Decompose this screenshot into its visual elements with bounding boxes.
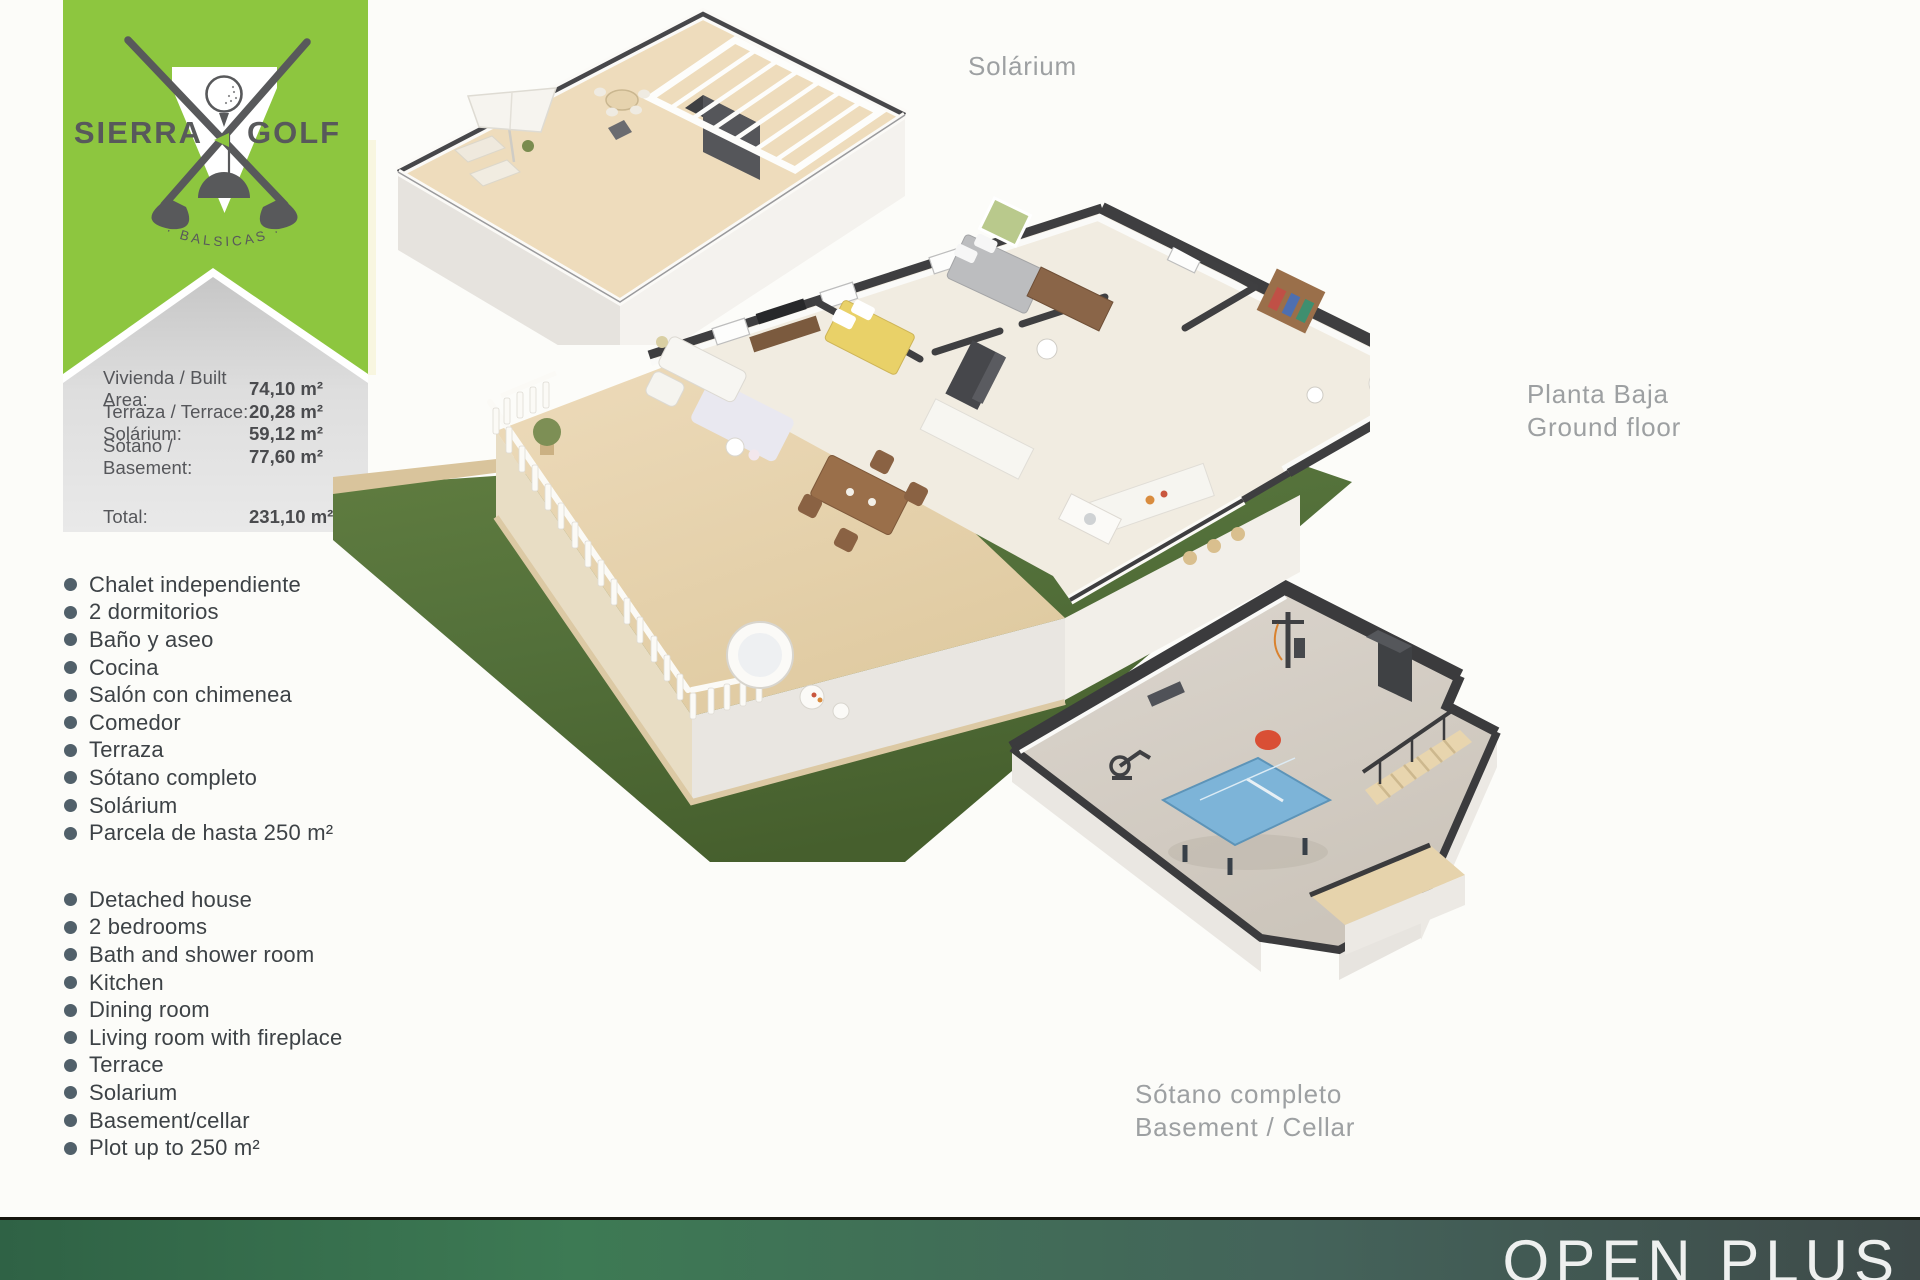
bullet-icon (64, 578, 77, 591)
feature-item: Living room with fireplace (64, 1024, 424, 1052)
bullet-icon (64, 921, 77, 934)
footer-title: OPEN PLUS (1503, 1232, 1900, 1280)
bullet-icon (64, 689, 77, 702)
feature-item: Solarium (64, 1079, 424, 1107)
beanbag (1255, 730, 1281, 750)
area-row-label: Terraza / Terrace: (103, 401, 249, 423)
brochure-page: SIERRA GOLF · BALSICAS · (0, 0, 1920, 1280)
bullet-icon (64, 948, 77, 961)
bullet-icon (64, 606, 77, 619)
area-row-value: 77,60 m² (249, 446, 323, 468)
bullet-icon (64, 1114, 77, 1127)
washbasin (1037, 339, 1057, 359)
area-row-value: 74,10 m² (249, 378, 323, 400)
feature-item: 2 bedrooms (64, 914, 424, 942)
round-side-table (800, 685, 824, 709)
area-row-value: 20,28 m² (249, 401, 323, 423)
area-row-value: 59,12 m² (249, 423, 323, 445)
bullet-icon (64, 1086, 77, 1099)
feature-item: Detached house (64, 886, 424, 914)
feature-item: Basement/cellar (64, 1107, 424, 1135)
solarium-label: Solárium (968, 50, 1077, 83)
area-row-label: Sótano / Basement: (103, 435, 249, 479)
bullet-icon (64, 716, 77, 729)
round-side-table (833, 703, 849, 719)
basement-label: Sótano completo Basement / Cellar (1135, 1078, 1355, 1144)
area-total-label: Total: (103, 506, 249, 528)
feature-item: Kitchen (64, 969, 424, 997)
area-total-value: 231,10 m² (249, 506, 333, 528)
bullet-icon (64, 976, 77, 989)
toilet (1307, 387, 1323, 403)
coffee-table (726, 438, 744, 456)
brand-word-golf: GOLF (247, 115, 341, 150)
area-table-row: Vivienda / Built Area: 74,10 m² (103, 378, 353, 401)
bullet-icon (64, 744, 77, 757)
bullet-icon (64, 661, 77, 674)
bar-stool (1207, 539, 1221, 553)
bullet-icon (64, 771, 77, 784)
brand-word-sierra: SIERRA (74, 115, 203, 150)
basement-3d-render (1000, 560, 1520, 980)
feature-item: Dining room (64, 996, 424, 1024)
bar-stool (1231, 527, 1245, 541)
bullet-icon (64, 1031, 77, 1044)
feature-item: Terrace (64, 1052, 424, 1080)
features-list-english: Detached house 2 bedrooms Bath and showe… (64, 886, 424, 1162)
area-total-row: Total: 231,10 m² (103, 506, 353, 529)
ground-floor-label: Planta Baja Ground floor (1527, 378, 1681, 444)
footer-bar: OPEN PLUS (0, 1217, 1920, 1280)
area-table: Vivienda / Built Area: 74,10 m² Terraza … (103, 378, 353, 468)
bullet-icon (64, 1059, 77, 1072)
feature-item: Bath and shower room (64, 941, 424, 969)
bullet-icon (64, 633, 77, 646)
area-table-row: Sótano / Basement: 77,60 m² (103, 446, 353, 469)
floor-lamp (656, 336, 668, 348)
bullet-icon (64, 1142, 77, 1155)
bullet-icon (64, 827, 77, 840)
bullet-icon (64, 799, 77, 812)
fruit-bowl (1146, 496, 1155, 505)
side-table (749, 450, 760, 461)
area-summary-panel: Vivienda / Built Area: 74,10 m² Terraza … (63, 268, 368, 532)
bullet-icon (64, 1004, 77, 1017)
feature-item: Plot up to 250 m² (64, 1134, 424, 1162)
bullet-icon (64, 893, 77, 906)
area-table-row: Terraza / Terrace: 20,28 m² (103, 401, 353, 424)
